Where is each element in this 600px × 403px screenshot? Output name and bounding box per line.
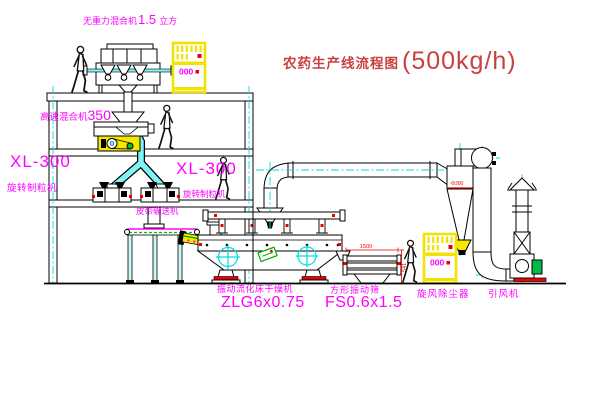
label-screen-model: FS0.6x1.5 (325, 295, 402, 311)
induced-draft-fan (507, 178, 546, 282)
label-granulator-left-name: 旋转制粒机 (7, 184, 57, 194)
label-gravity-mixer: 无重力混合机 1.5 立方 (83, 13, 177, 26)
cyclone-outlet-flange (472, 148, 493, 169)
diagram-title-text: 农药生产线流程图 (283, 52, 399, 72)
diagram-title-capacity: (500kg/h) (402, 47, 517, 76)
label-dryer-model: ZLG6x0.75 (221, 295, 305, 311)
control-cabinet-top (173, 43, 205, 92)
worker-ground (403, 240, 416, 282)
label-belt-conveyor: 皮带输送机 (136, 207, 179, 216)
label-cyclone: 旋风除尘器 (417, 290, 470, 300)
diagram-title: 农药生产线流程图 (500kg/h) (283, 47, 517, 76)
label-high-speed-mixer: 高速混合机 350 (40, 108, 111, 122)
label-fan: 引风机 (488, 290, 520, 300)
label-granulator-left-model: XL-300 (10, 153, 71, 170)
label-dryer-name: 振动流化床干燥机 (217, 285, 293, 294)
vibrating-screen: 1500 541 (336, 244, 408, 283)
control-cabinet-ground (424, 234, 456, 283)
label-granulator-right-model: XL-300 (176, 160, 237, 177)
worker-second-floor (159, 105, 173, 148)
diagram-canvas: 000 (0, 0, 600, 403)
label-granulator-right-name: 旋转制粒机 (183, 190, 226, 199)
gravity-free-mixer (83, 44, 175, 116)
cyclone-dim-label: Φ300 (451, 181, 464, 187)
belt-conveyor (125, 207, 200, 283)
fan-inlet-duct (473, 168, 514, 281)
dim-width-label: 1500 (360, 244, 372, 250)
fan-motor (532, 260, 542, 274)
